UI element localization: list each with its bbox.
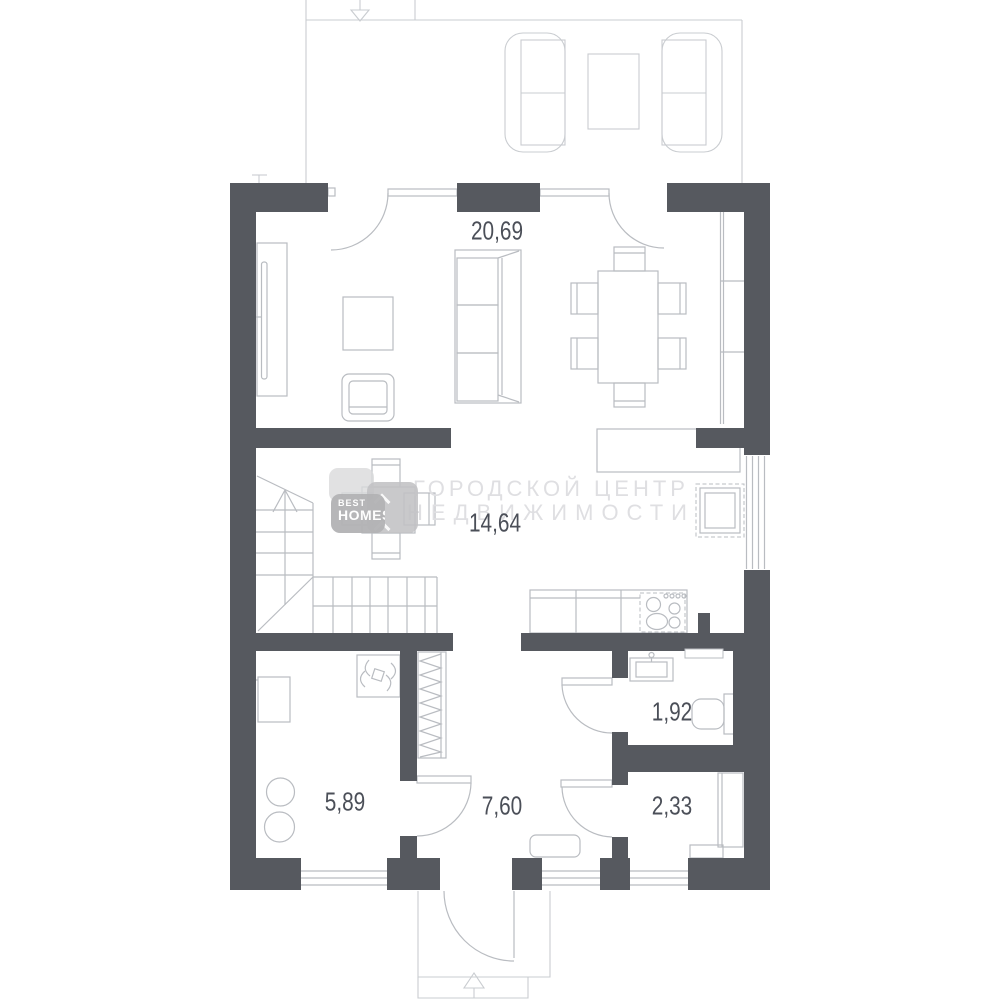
floor-plan-canvas: ГОРОДСКОЙ ЦЕНТР НЕДВИЖИМОСТИ BEST HOMES … [0, 0, 1000, 1000]
terrace-table [588, 54, 639, 129]
boiler-unit [256, 677, 290, 722]
coffee-table [343, 297, 393, 350]
entrance-porch [418, 891, 550, 998]
toilet [692, 694, 735, 734]
washer-circles [265, 778, 295, 842]
watermark-line-2: НЕДВИЖИМОСТИ [407, 500, 695, 526]
stove [640, 593, 686, 632]
area-label-wc: 1,92 [652, 697, 692, 728]
wc-door [562, 678, 612, 733]
area-label-storage: 2,33 [652, 791, 692, 822]
area-label-laundry: 5,89 [325, 787, 365, 818]
area-label-living-room: 20,69 [471, 216, 523, 247]
area-label-kitchen: 14,64 [469, 508, 521, 539]
stair-direction-arrow-icon [273, 490, 297, 605]
terrace-armchair-left [505, 33, 565, 152]
shoe-bench [530, 835, 580, 857]
best-homes-logo: BEST HOMES [327, 466, 421, 562]
terrace-outline [306, 0, 742, 183]
french-door-right [540, 189, 664, 248]
laundry-door [417, 776, 471, 836]
sofa [455, 250, 521, 403]
ventilation-unit [357, 655, 400, 697]
logo-text-bottom: HOMES [338, 508, 385, 523]
watermark-line-1: ГОРОДСКОЙ ЦЕНТР [413, 476, 689, 502]
kitchen-window [747, 456, 765, 569]
logo-badge: BEST HOMES [331, 494, 385, 533]
sink [630, 653, 673, 682]
tv-unit [256, 243, 287, 396]
armchair [342, 374, 394, 421]
terrace-entry-arrow-icon [351, 0, 369, 21]
terrace-armchair-right [662, 33, 722, 152]
storage-shelf [718, 773, 743, 847]
french-door-left [328, 188, 457, 250]
oven-unit [696, 484, 744, 537]
dining-table-set [571, 247, 686, 407]
area-label-hallway: 7,60 [482, 791, 522, 822]
storage-door [561, 780, 612, 837]
dining-window-glazing [721, 212, 745, 424]
hose-bib-icon [252, 175, 267, 183]
coat-rack [418, 652, 446, 758]
entrance-door [444, 891, 514, 961]
